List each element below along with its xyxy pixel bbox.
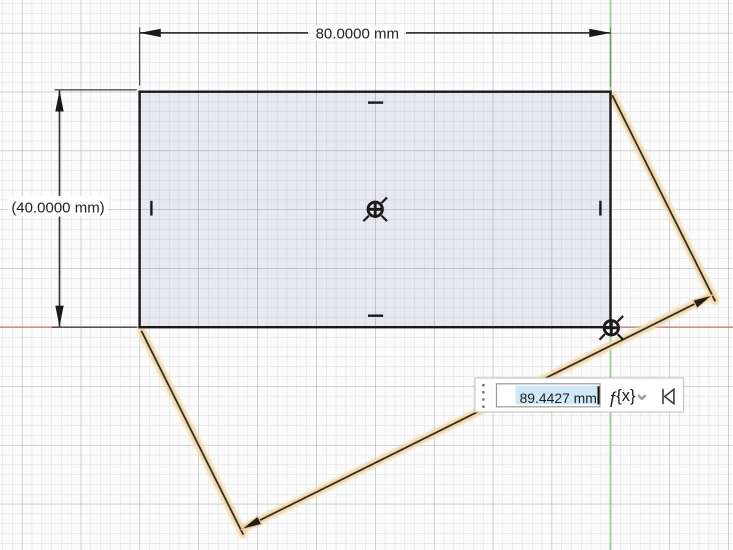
svg-text:(40.0000 mm): (40.0000 mm) bbox=[11, 199, 104, 216]
svg-text:{x}: {x} bbox=[616, 387, 636, 405]
svg-text:89.4427 mm: 89.4427 mm bbox=[520, 390, 597, 406]
svg-text:80.0000 mm: 80.0000 mm bbox=[316, 25, 399, 42]
